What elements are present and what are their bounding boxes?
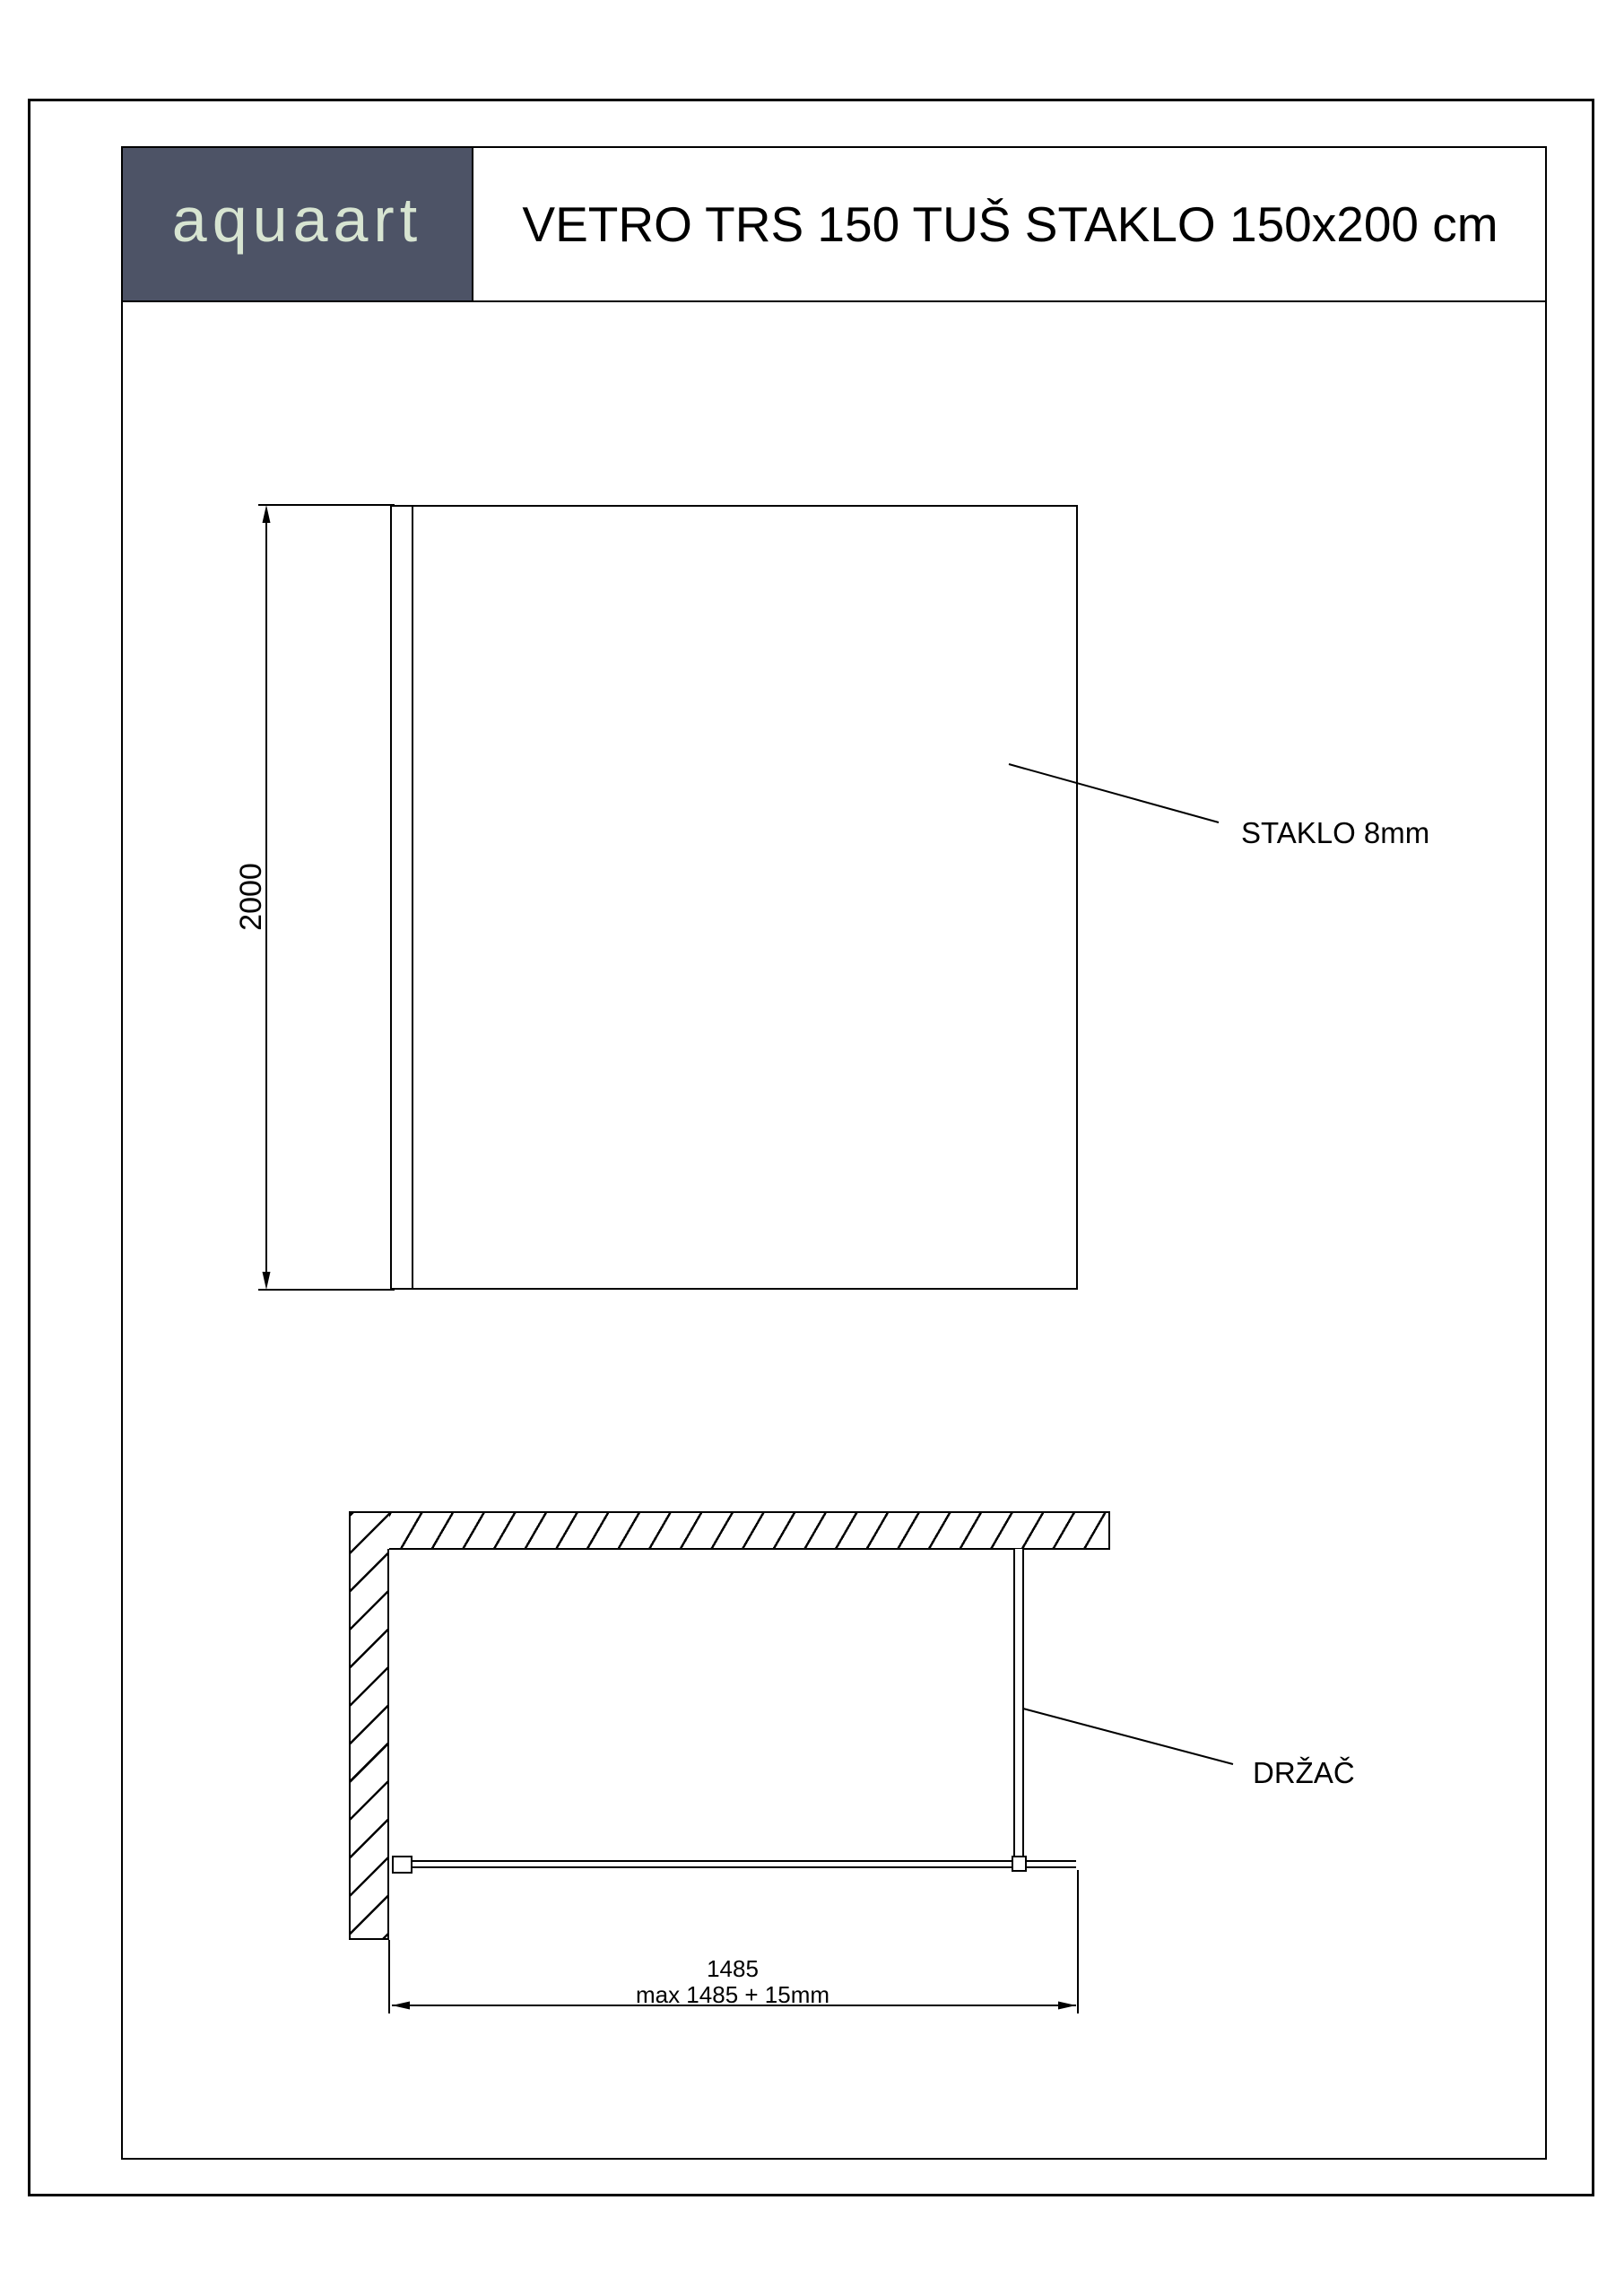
title-area: VETRO TRS 150 TUŠ STAKLO 150x200 cm [473,146,1547,302]
front-view-wall-profile [390,505,413,1290]
width-dimension-label: 1485 [643,1957,822,1980]
plan-view-glass-panel [413,1860,1076,1868]
plan-view-wall-top-hatched [389,1511,1110,1550]
page-title: VETRO TRS 150 TUŠ STAKLO 150x200 cm [522,196,1498,253]
front-view-glass-panel [412,505,1078,1290]
height-dimension-label: 2000 [236,807,266,987]
glass-callout-label: STAKLO 8mm [1241,818,1429,848]
width-max-note-label: max 1485 + 15mm [598,1983,867,2006]
drawing-sheet: aquaart VETRO TRS 150 TUŠ STAKLO 150x200… [0,0,1624,2296]
plan-view-wall-mount-profile [392,1856,413,1874]
plan-view-support-clamp [1012,1856,1027,1872]
holder-callout-label: DRŽAČ [1253,1758,1355,1787]
plan-view-support-bar [1013,1549,1024,1857]
logo-box: aquaart [121,146,473,302]
logo-text: aquaart [172,188,422,260]
plan-view-wall-left-hatched [349,1511,389,1940]
